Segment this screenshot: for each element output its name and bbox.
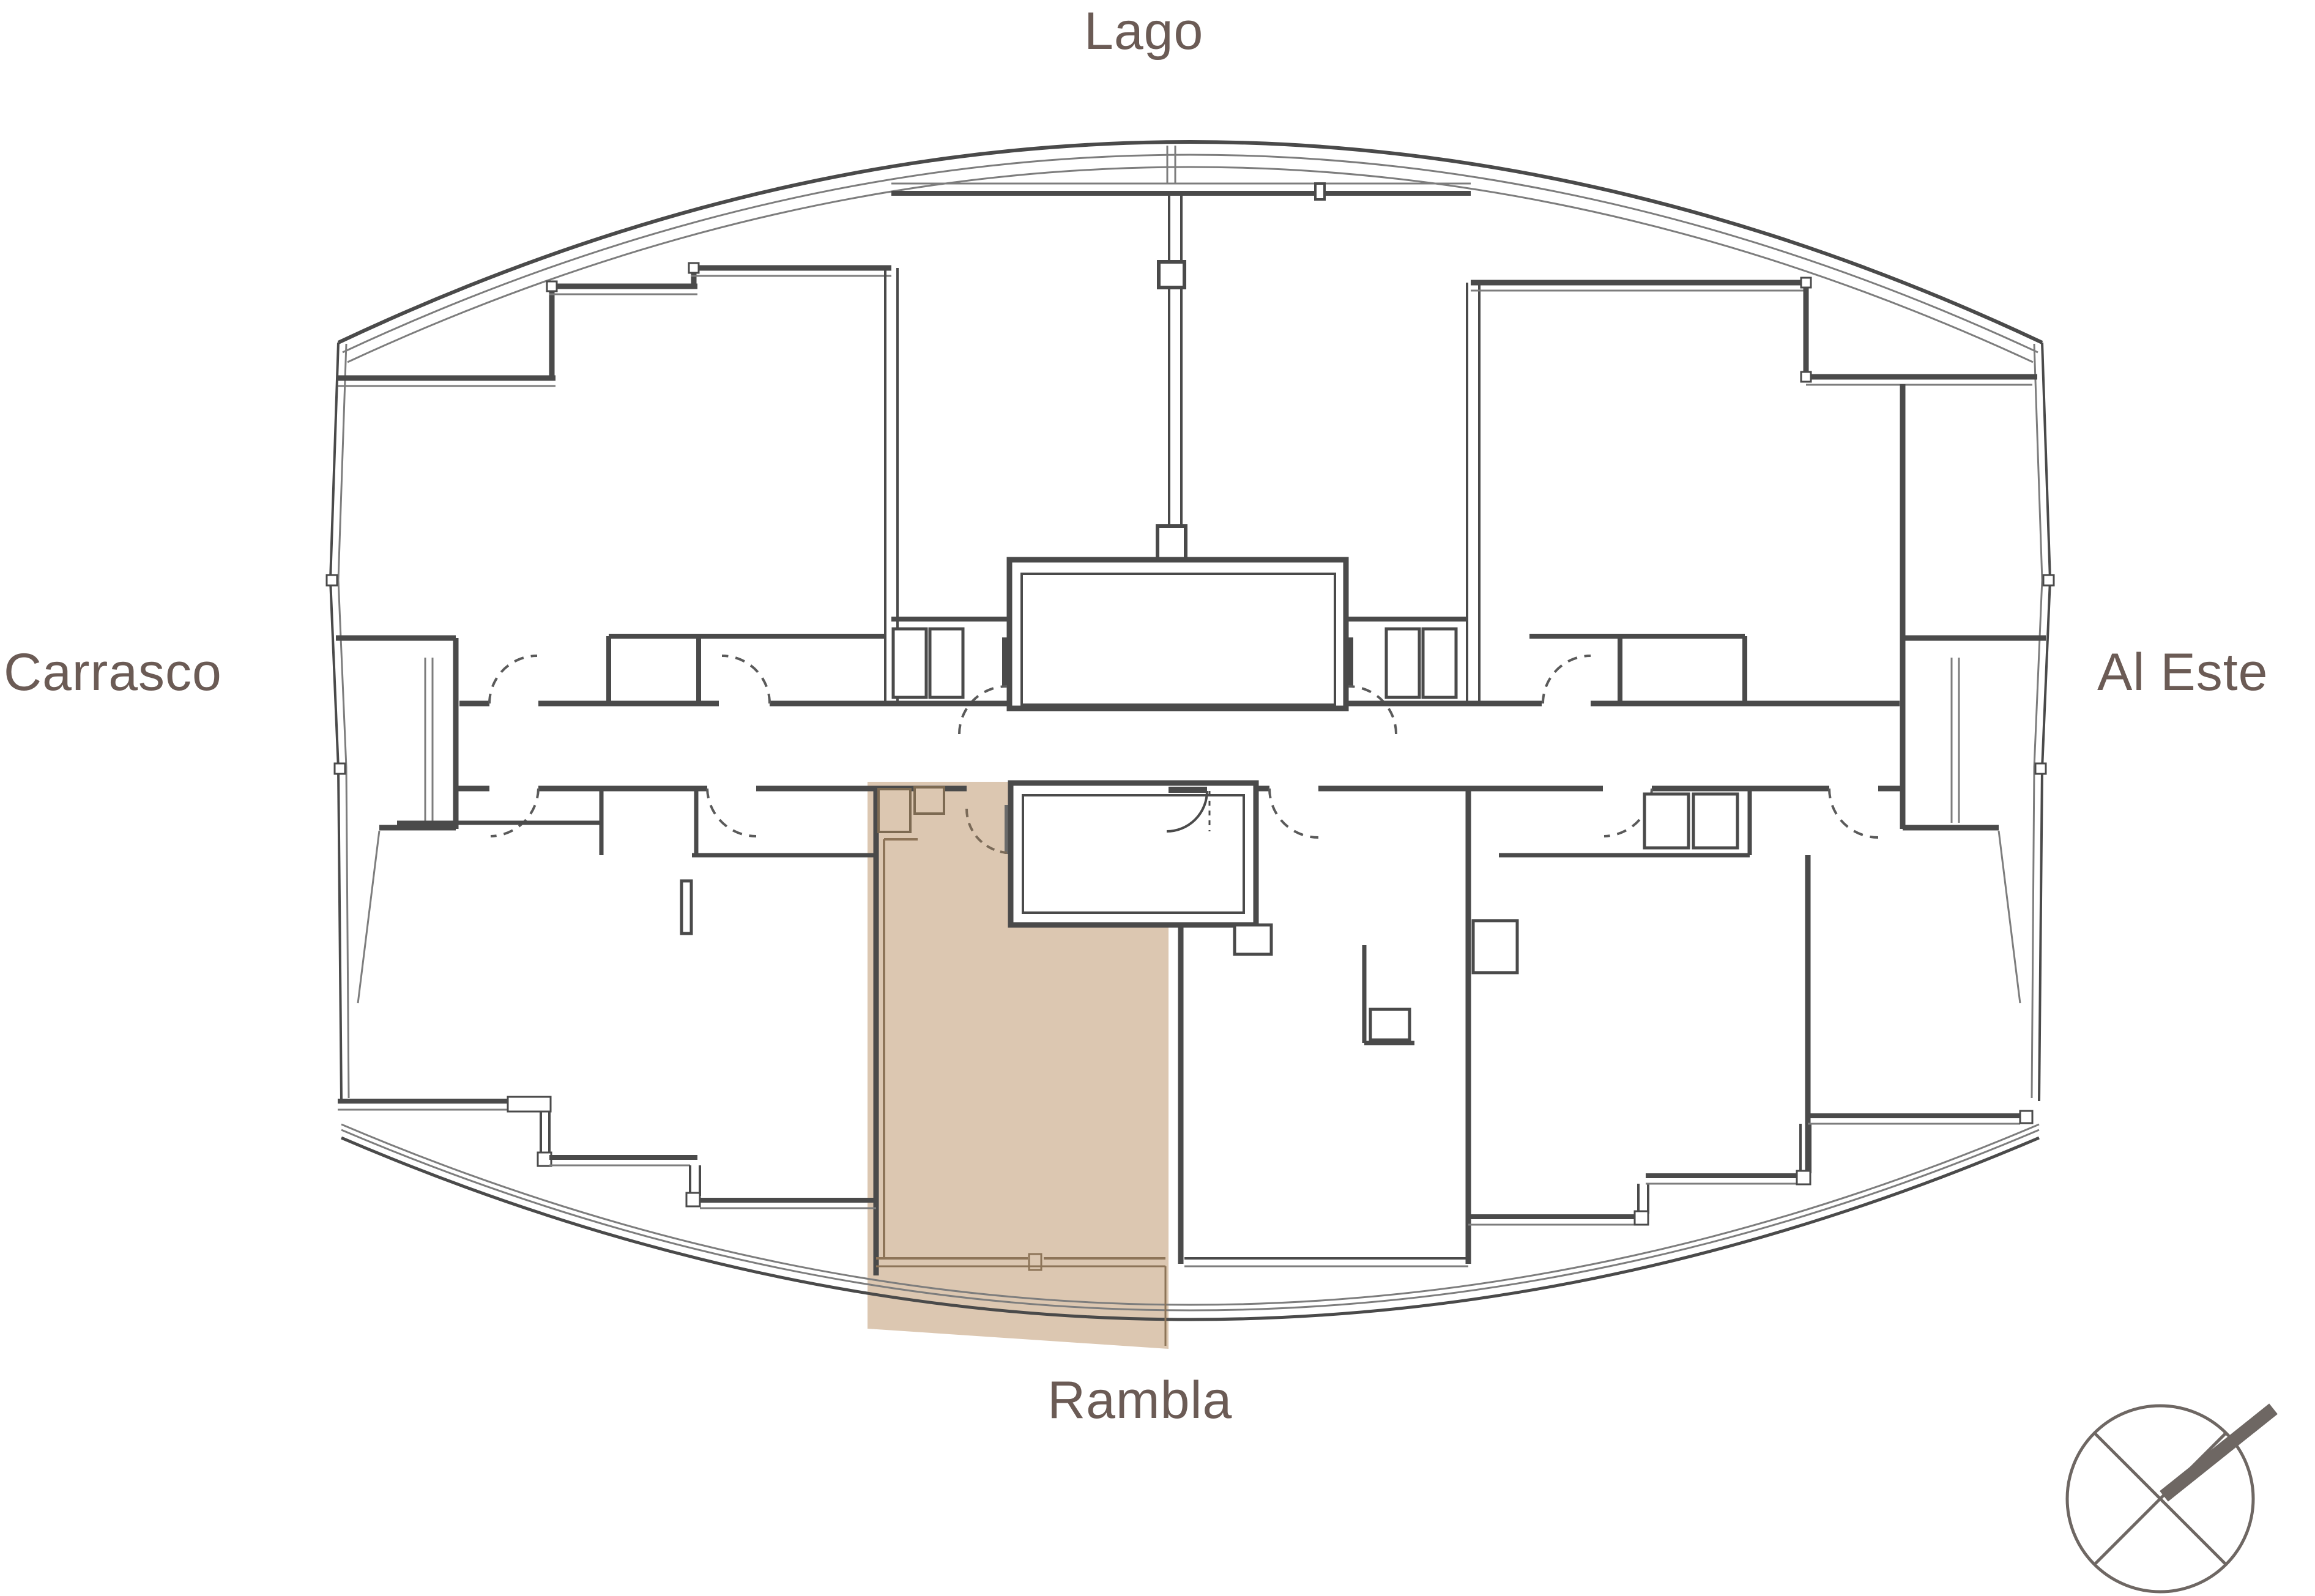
bathroom-room <box>1011 783 1256 925</box>
label-carrasco: Carrasco <box>4 644 222 702</box>
elevator-core <box>959 560 1396 734</box>
left-facade <box>327 343 349 1101</box>
core-left-door-leaf <box>1002 637 1008 686</box>
floor-plan-svg <box>0 0 2315 1596</box>
right-facade <box>2032 343 2054 1101</box>
outer-shell <box>327 142 2054 1319</box>
label-al-este: Al Este <box>2097 644 2268 702</box>
bottom-facade-arc <box>341 1124 2039 1319</box>
floor-plan-page: Lago Carrasco Al Este Rambla <box>0 0 2315 1596</box>
top-facade-arc <box>338 142 2042 362</box>
lower-right-unit <box>1181 789 2032 1266</box>
label-lago: Lago <box>1084 2 1203 61</box>
label-rambla: Rambla <box>1047 1371 1232 1430</box>
kitchen-cabinet <box>879 789 910 832</box>
compass-north-arrow <box>2164 1409 2273 1496</box>
lower-left-unit <box>338 789 876 1275</box>
right-bay <box>1903 638 2046 1003</box>
core-right-door-leaf <box>1347 637 1353 686</box>
kitchen-cabinet <box>915 787 944 814</box>
core-left-door-arc <box>959 686 1007 734</box>
compass-icon <box>2067 1406 2273 1592</box>
